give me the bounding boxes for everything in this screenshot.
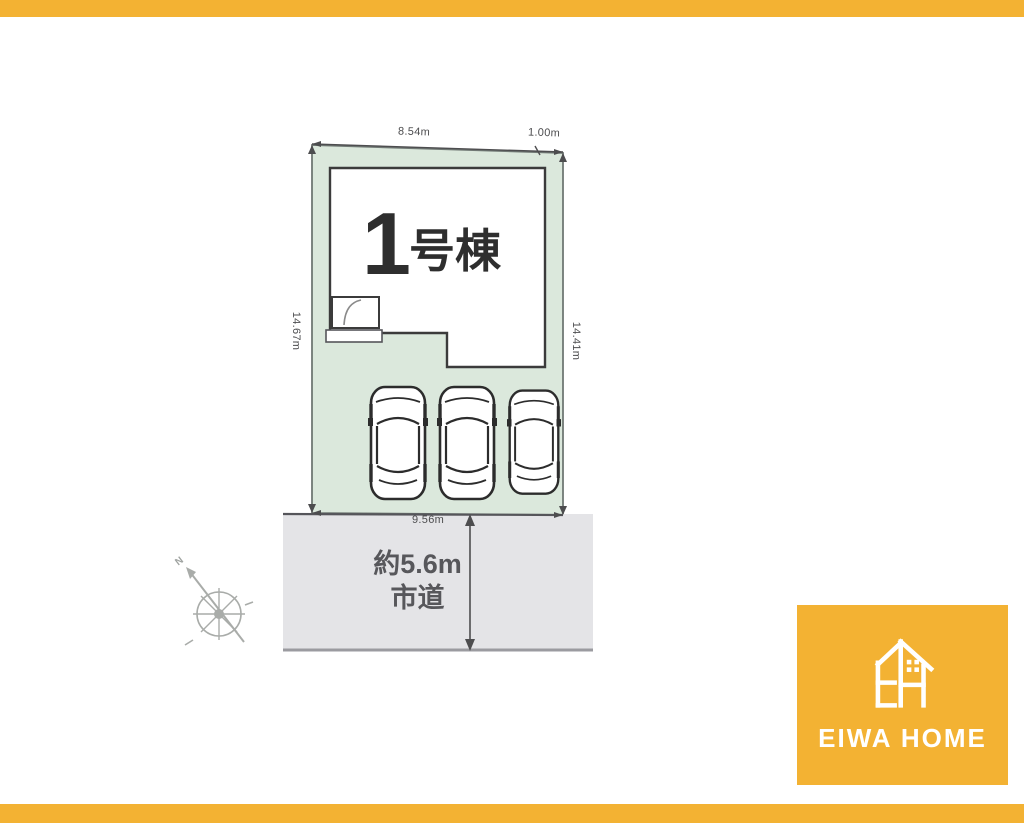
logo-text: EIWA HOME bbox=[818, 723, 987, 754]
compass-icon bbox=[185, 567, 253, 645]
road-label: 約5.6m 市道 bbox=[330, 548, 505, 616]
car-icon bbox=[437, 387, 497, 499]
dimension-top-main: 8.54m bbox=[398, 125, 430, 138]
building-suffix: 号棟 bbox=[409, 228, 501, 274]
dimension-top-right: 1.00m bbox=[528, 126, 560, 139]
building-label: 1 号棟 bbox=[362, 200, 542, 288]
eiwa-house-icon bbox=[860, 637, 946, 713]
building-number: 1 bbox=[362, 200, 409, 288]
road-type-text: 市道 bbox=[330, 582, 505, 616]
road-width-text: 約5.6m bbox=[330, 548, 505, 582]
dimension-right: 14.41m bbox=[570, 317, 582, 365]
company-logo: EIWA HOME bbox=[797, 605, 1008, 785]
car-icon bbox=[368, 387, 428, 499]
dimension-left: 14.67m bbox=[290, 307, 302, 355]
car-icon bbox=[507, 391, 561, 494]
entry-step-shape bbox=[326, 330, 382, 342]
dimension-bottom: 9.56m bbox=[412, 514, 444, 526]
